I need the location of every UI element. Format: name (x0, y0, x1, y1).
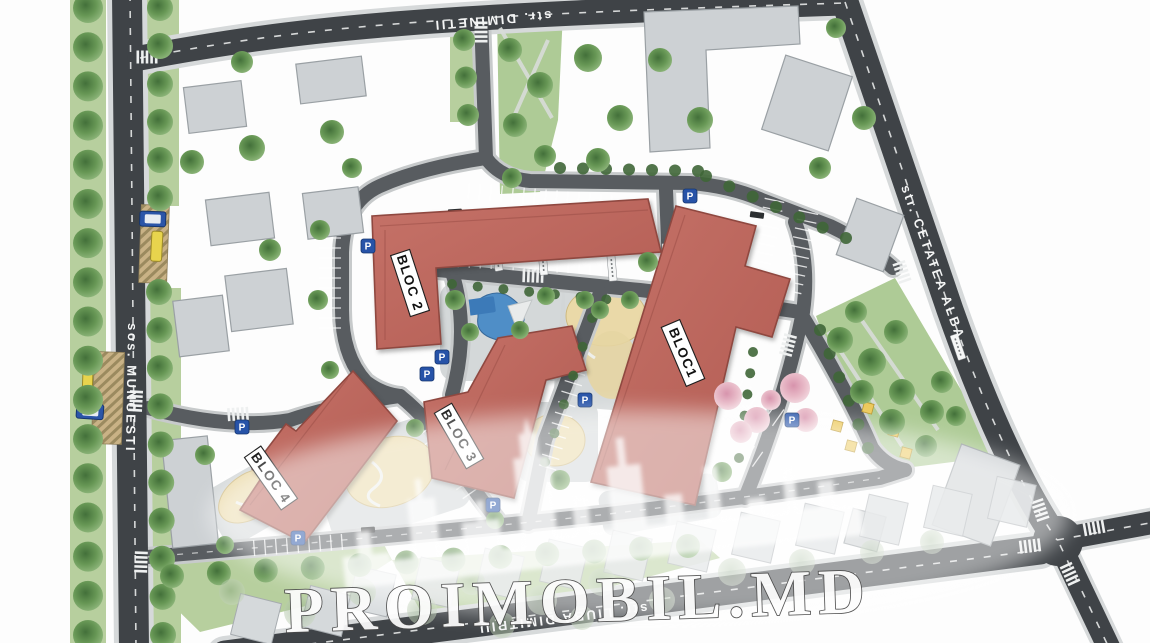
parking-sign (361, 239, 375, 253)
bus-yellow (150, 231, 163, 262)
trolleybus (139, 211, 166, 227)
site-plan-canvas: P (0, 0, 1150, 643)
parking-sign (435, 350, 449, 364)
parking-sign (578, 393, 592, 407)
parking-sign (683, 189, 697, 203)
parking-sign (235, 420, 249, 434)
parking-sign (420, 367, 434, 381)
street-label-muncesti: sos. MUNCESTI (123, 323, 140, 453)
site-plan: P (0, 0, 1150, 643)
